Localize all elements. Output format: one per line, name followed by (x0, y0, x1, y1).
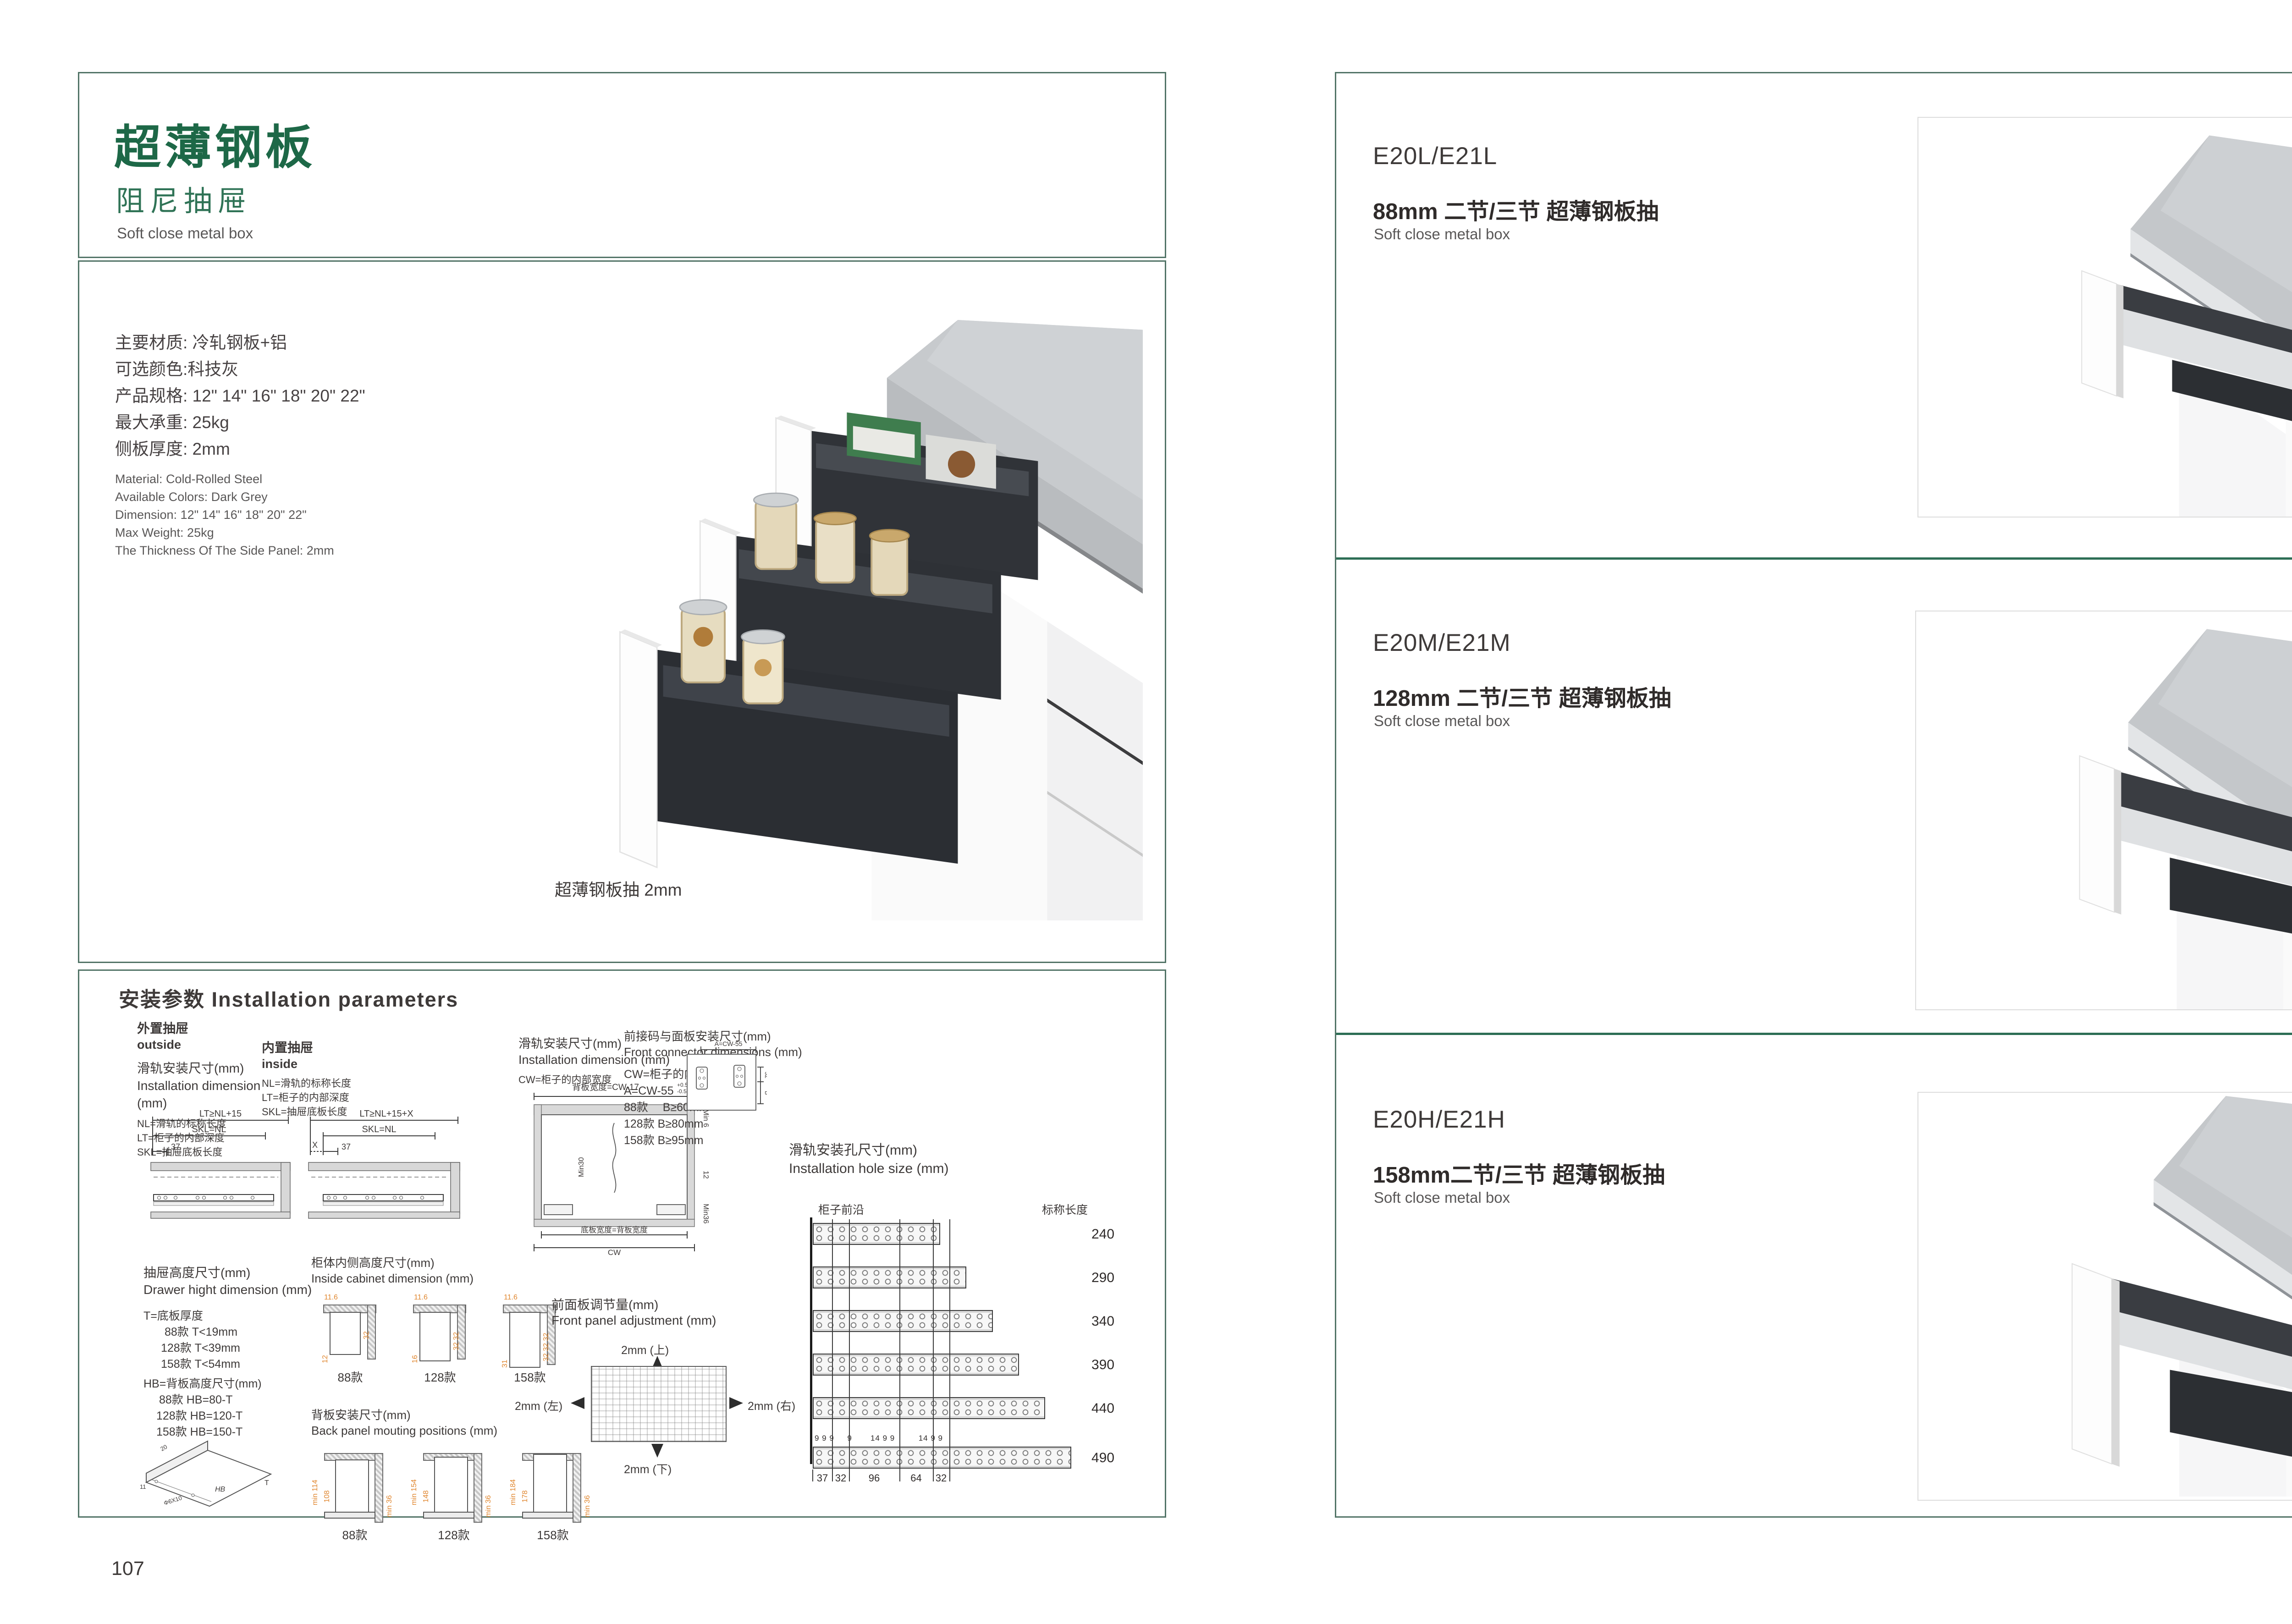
rail-length-240: 240 (1091, 1227, 1114, 1242)
connector-dim-b: B (764, 1091, 767, 1095)
drawer-158-illustration (1918, 1093, 2292, 1500)
right-page: E20L/E21L 88mm 二节/三节 超薄钢板抽 Soft close me… (1245, 0, 2292, 1624)
hole-header-cn: 滑轨安装孔尺寸(mm) (789, 1141, 1110, 1160)
outside-label-en: outside (137, 1037, 275, 1052)
section-divider (1336, 557, 2292, 560)
specs-english: Material: Cold-Rolled Steel Available Co… (115, 470, 334, 560)
ic-dim-top: 11.6 (504, 1294, 518, 1302)
hb-row-128: 128款 HB=120-T (143, 1408, 336, 1424)
catalog-spread: 超薄钢板 阻尼抽屉 Soft close metal box 主要材质: 冷轧钢… (0, 0, 2292, 1624)
arrow-down-icon (651, 1444, 663, 1458)
drawer-height-cn: 抽屉高度尺寸(mm) (143, 1264, 336, 1281)
iso-dim-20: 20 (159, 1443, 168, 1453)
back-panel-row: min 114 108 min 36 88款 min 154 148 min 3… (311, 1446, 623, 1543)
bp-minb: min 36 (386, 1495, 394, 1517)
cabinet-side-hatch (573, 1453, 581, 1523)
spec-weight-cn: 最大承重: 25kg (115, 409, 365, 436)
ic-label: 128款 (401, 1368, 479, 1385)
connector-dim-32: 32 (764, 1072, 767, 1078)
bp-minh: min 114 (311, 1480, 320, 1505)
back-panel-outline (434, 1457, 468, 1513)
spec-color-en: Available Colors: Dark Grey (115, 488, 334, 506)
spec-dimension-cn: 产品规格: 12" 14" 16" 18" 20" 22" (115, 383, 365, 409)
install-heading: 安装参数 Installation parameters (119, 983, 458, 1013)
model-title-cn: 128mm 二节/三节 超薄钢板抽 (1373, 680, 1671, 713)
ic-label: 158款 (491, 1368, 569, 1385)
cw-label: CW (608, 1248, 621, 1256)
raildim-en: Installation dimension (mm) (137, 1077, 275, 1112)
model-title-en: Soft close metal box (1374, 1189, 1510, 1206)
cabinet-side-hatch (375, 1453, 383, 1523)
bp-label: 88款 (311, 1526, 398, 1543)
dim-x-label: X (312, 1140, 318, 1150)
model-code: E20H/E21H (1373, 1106, 1505, 1134)
ic-dim-v1: 32 32 (452, 1332, 461, 1350)
min36-label: Min36 (702, 1204, 710, 1224)
back-panel-88: min 114 108 min 36 88款 (311, 1446, 398, 1543)
bp-minb: min 36 (584, 1495, 592, 1517)
bp-minh: min 154 (410, 1479, 419, 1505)
adjust-right-label: 2mm (右) (748, 1397, 795, 1414)
ic-dim-v1: 32 (363, 1331, 371, 1339)
rail-490 (813, 1447, 1071, 1469)
model-photo-e20m (1915, 611, 2292, 1010)
ic-dim-v2: 16 (411, 1355, 419, 1363)
ic-label: 88款 (311, 1368, 389, 1385)
drawer-side-outline (419, 1312, 451, 1361)
back-panel-block: 背板安装尺寸(mm) Back panel mouting positions … (311, 1407, 623, 1543)
rail-440 (813, 1397, 1045, 1419)
inside-cab-88: 11.6 32 12 88款 (311, 1294, 389, 1385)
dim-skl-label: SKL=NL (362, 1124, 396, 1134)
dim-37-label: 37 (171, 1142, 180, 1151)
spec-material-en: Material: Cold-Rolled Steel (115, 470, 334, 488)
inside-cab-128: 11.6 32 32 16 128款 (401, 1294, 479, 1385)
cabinet-side-hatch (474, 1453, 482, 1523)
inside-label-cn: 内置抽屉 (262, 1040, 399, 1056)
drawer-iso-sketch: 20 11 Φ6X10 HB T (138, 1437, 280, 1510)
ic-dim-v2: 31 (501, 1360, 509, 1368)
back-panel-128: min 154 148 min 36 128款 (410, 1446, 497, 1543)
rail-length-290: 290 (1091, 1270, 1114, 1286)
drawer-height-block: 抽屉高度尺寸(mm) Drawer hight dimension (mm) T… (143, 1264, 336, 1440)
outside-label-cn: 外置抽屉 (137, 1020, 275, 1037)
inside-cab-cn: 柜体内侧高度尺寸(mm) (311, 1255, 605, 1271)
drawer-system-illustration (526, 304, 1143, 920)
hole-dim-96: 96 (849, 1472, 899, 1484)
rail-length-440: 440 (1091, 1401, 1114, 1416)
nominal-length-label: 标称长度 (1042, 1201, 1088, 1217)
title-box: 超薄钢板 阻尼抽屉 Soft close metal box (78, 72, 1166, 258)
hole-size-header: 滑轨安装孔尺寸(mm) Installation hole size (mm) (789, 1141, 1110, 1178)
model-photo-e20h (1917, 1092, 2292, 1501)
connector-plate (687, 1054, 756, 1110)
spec-dimension-en: Dimension: 12" 14" 16" 18" 20" 22" (115, 506, 334, 524)
arrow-right-icon (729, 1397, 743, 1409)
inside-dim-lines (310, 1117, 458, 1155)
guide-line (949, 1219, 950, 1470)
inside-label-en: inside (262, 1056, 399, 1072)
dim-37-label: 37 (342, 1142, 351, 1151)
spec-color-cn: 可选颜色:科技灰 (115, 356, 365, 383)
outside-cabinet-section (151, 1162, 290, 1218)
legend-nl: NL=滑轨的标称长度 (262, 1076, 399, 1090)
guide-line (849, 1219, 850, 1470)
rail-340 (813, 1310, 993, 1332)
page-subtitle-en: Soft close metal box (117, 225, 253, 242)
drawer-height-en: Drawer hight dimension (mm) (143, 1281, 336, 1298)
installation-box: 安装参数 Installation parameters 外置抽屉 outsid… (78, 969, 1166, 1518)
outside-diagram: LT≥NL+15 SKL=NL 37 (147, 1107, 295, 1223)
ic-dim-v1: 32 32 32 (542, 1333, 551, 1361)
rail-length-490: 490 (1091, 1450, 1114, 1466)
model-code: E20L/E21L (1373, 142, 1497, 170)
back-panel-cn: 背板安装尺寸(mm) (311, 1407, 623, 1423)
hb-row-88: 88款 HB=80-T (143, 1392, 336, 1408)
model-code: E20M/E21M (1373, 629, 1511, 657)
t-row-88: 88款 T<19mm (143, 1324, 336, 1340)
rail-stub (324, 1512, 375, 1519)
drawer-88-illustration (1918, 118, 2292, 517)
front-panel-hatch (591, 1366, 727, 1442)
page-number-left: 107 (111, 1558, 144, 1580)
t-legend: T=底板厚度 (143, 1308, 336, 1324)
dim-lt-label: LT≥NL+15+X (359, 1109, 413, 1119)
hole-dim-32b: 32 (933, 1472, 949, 1484)
product-photo: 超薄钢板抽 2mm (526, 304, 1143, 920)
section-divider (1336, 1033, 2292, 1035)
guide-line (832, 1219, 833, 1470)
model-title-cn: 158mm二节/三节 超薄钢板抽 (1373, 1157, 1665, 1189)
rail-290 (813, 1266, 966, 1288)
model-title-cn: 88mm 二节/三节 超薄钢板抽 (1373, 193, 1658, 226)
model-title-en: Soft close metal box (1374, 226, 1510, 243)
drawer-side-outline (330, 1312, 361, 1355)
bp-minh: min 184 (509, 1479, 518, 1505)
inside-cab-en: Inside cabinet dimension (mm) (311, 1271, 605, 1286)
adjust-down-label: 2mm (下) (624, 1460, 672, 1477)
inside-cabinet-section (309, 1162, 460, 1218)
d12-label: 12 (702, 1171, 710, 1179)
iso-dim-t: T (264, 1479, 269, 1487)
inside-diagram: LT≥NL+15+X SKL=NL 37 X (305, 1107, 464, 1223)
connector-dim-a: A=CW-55 (715, 1040, 743, 1047)
rail-stub (522, 1512, 573, 1519)
spec-weight-en: Max Weight: 25kg (115, 524, 334, 542)
dim-tick (949, 1470, 950, 1481)
bp-h: 148 (422, 1490, 430, 1503)
adjust-up-label: 2mm (上) (621, 1341, 669, 1358)
dim-skl-label: SKL=NL (192, 1124, 226, 1134)
guide-line (899, 1219, 900, 1470)
photo-caption: 超薄钢板抽 2mm (555, 876, 682, 901)
hole-dim-64: 64 (899, 1472, 933, 1484)
ic-dim-top: 11.6 (414, 1294, 428, 1302)
spec-material-cn: 主要材质: 冷轧钢板+铝 (115, 330, 365, 356)
front-connector-diagram: A=CW-55 32 B (679, 1040, 767, 1118)
cabinet-front-label: 柜子前沿 (818, 1201, 864, 1217)
model-photo-e20l (1917, 117, 2292, 517)
page-subtitle: 阻尼抽屉 (116, 178, 252, 219)
bp-label: 158款 (509, 1526, 596, 1543)
guide-line (933, 1219, 934, 1470)
bp-h: 108 (323, 1490, 331, 1503)
hole-dim-37: 37 (812, 1472, 832, 1484)
bottom-width-label: 底板宽度=背板宽度 (581, 1226, 648, 1234)
spec-thickness-cn: 侧板厚度: 2mm (115, 436, 365, 462)
product-overview-box: 主要材质: 冷轧钢板+铝 可选颜色:科技灰 产品规格: 12" 14" 16" … (78, 260, 1166, 963)
rail-390 (813, 1354, 1019, 1376)
adjust-left-label: 2mm (左) (515, 1397, 562, 1414)
cabinet-front-line (810, 1217, 812, 1464)
spec-thickness-en: The Thickness Of The Side Panel: 2mm (115, 542, 334, 560)
drawer-128-illustration (1916, 611, 2292, 1009)
bp-minb: min 36 (485, 1495, 493, 1517)
raildim-cn: 滑轨安装尺寸(mm) (137, 1060, 275, 1077)
bp-h: 178 (521, 1490, 529, 1503)
iso-dim-11: 11 (140, 1483, 146, 1490)
front-adjust-block: 前面板调节量(mm) Front panel adjustment (mm) 2… (551, 1297, 790, 1328)
rail-stub (423, 1512, 474, 1519)
models-box: E20L/E21L 88mm 二节/三节 超薄钢板抽 Soft close me… (1335, 72, 2292, 1518)
ic-dim-v2: 12 (321, 1355, 330, 1363)
rails-table: 柜子前沿 标称长度 240 290 340 390 440 490 9 9 9 … (794, 1199, 1161, 1483)
specs-chinese: 主要材质: 冷轧钢板+铝 可选颜色:科技灰 产品规格: 12" 14" 16" … (115, 330, 365, 462)
hole-header-en: Installation hole size (mm) (789, 1160, 1110, 1178)
t-row-158: 158款 T<54mm (143, 1356, 336, 1372)
left-page: 超薄钢板 阻尼抽屉 Soft close metal box 主要材质: 冷轧钢… (0, 0, 1245, 1624)
t-row-128: 128款 T<39mm (143, 1340, 336, 1356)
page-title: 超薄钢板 (114, 110, 316, 177)
hb-legend: HB=背板高度尺寸(mm) (143, 1376, 336, 1392)
arrow-left-icon (571, 1397, 584, 1409)
back-panel-outline (335, 1459, 369, 1513)
rail-length-340: 340 (1091, 1314, 1114, 1329)
rail-gap-dims: 9 9 9 9 14 9 9 14 9 9 (815, 1434, 943, 1443)
back-panel-en: Back panel mouting positions (mm) (311, 1423, 623, 1438)
hole-dim-32: 32 (832, 1472, 849, 1484)
front-adjust-cn: 前面板调节量(mm) (551, 1297, 790, 1313)
bp-label: 128款 (410, 1526, 497, 1543)
legend-lt: LT=柜子的内部深度 (262, 1090, 399, 1105)
front-adjust-en: Front panel adjustment (mm) (551, 1313, 790, 1328)
ic-dim-top: 11.6 (324, 1294, 338, 1302)
model-title-en: Soft close metal box (1374, 712, 1510, 730)
back-panel-outline (533, 1454, 567, 1514)
drawer-side-outline (509, 1312, 540, 1368)
back-panel-158: min 184 178 min 36 158款 (509, 1446, 596, 1543)
dim-lt-label: LT≥NL+15 (199, 1109, 242, 1119)
min30-label: Min30 (578, 1157, 585, 1177)
iso-dim-hb: HB (215, 1486, 226, 1493)
iso-dim-screw: Φ6X10 (163, 1494, 182, 1507)
rail-length-390: 390 (1091, 1357, 1114, 1373)
